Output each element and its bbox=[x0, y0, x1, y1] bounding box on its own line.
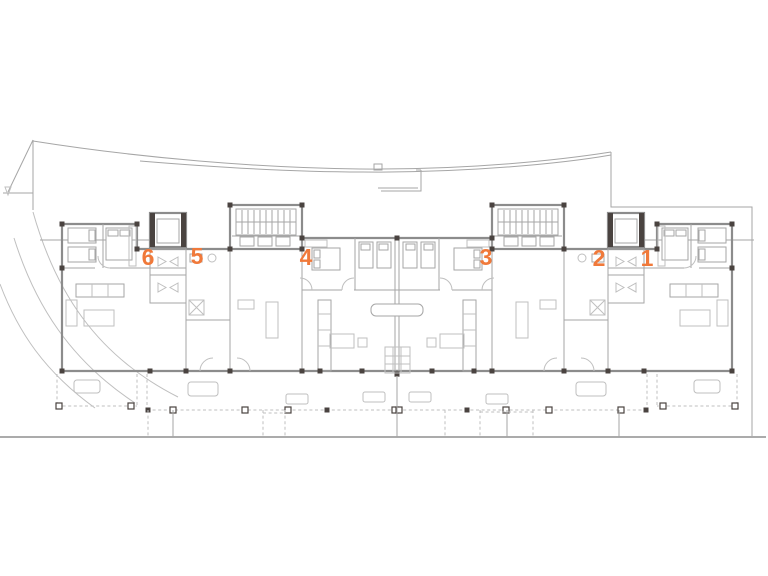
unit-number-4: 4 bbox=[300, 244, 313, 270]
floor-plan-canvas: 123456 bbox=[0, 0, 768, 576]
building-left-wing bbox=[40, 203, 398, 414]
unit-number-5: 5 bbox=[191, 243, 204, 269]
building-right-wing bbox=[396, 203, 754, 414]
unit-number-6: 6 bbox=[142, 244, 155, 270]
floor-plan-page: 123456 bbox=[0, 0, 768, 576]
unit-numbers: 123456 bbox=[142, 243, 654, 271]
unit-number-3: 3 bbox=[480, 244, 493, 270]
unit-number-1: 1 bbox=[641, 245, 654, 271]
unit-number-2: 2 bbox=[593, 245, 606, 271]
